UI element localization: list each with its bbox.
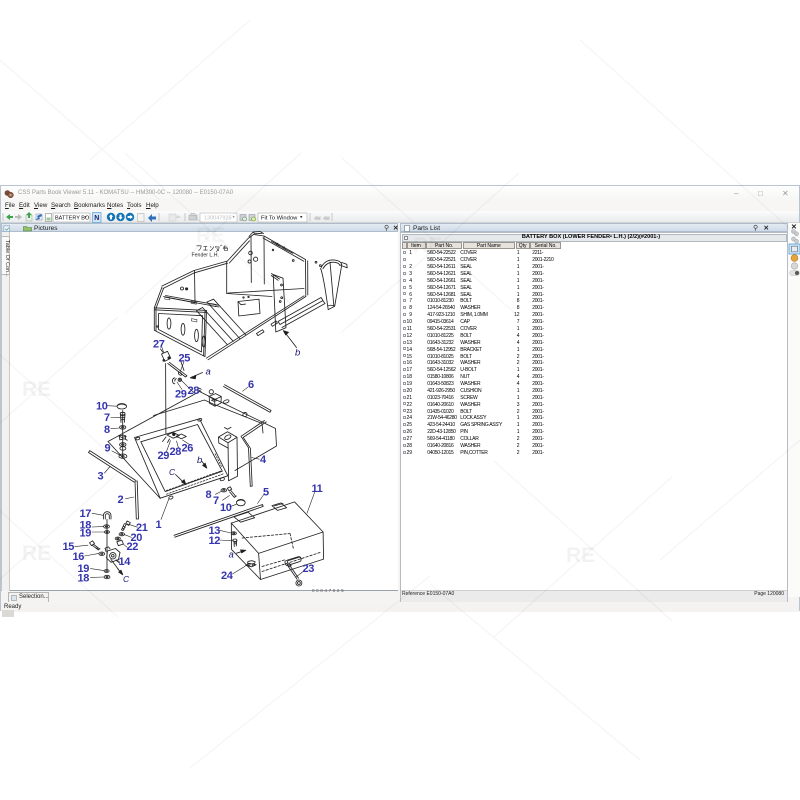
svg-text:RE: RE [413,234,442,257]
svg-text:RE: RE [22,542,51,565]
svg-text:RE: RE [566,544,595,567]
svg-text:RE: RE [196,224,225,247]
svg-text:RE: RE [22,378,51,401]
